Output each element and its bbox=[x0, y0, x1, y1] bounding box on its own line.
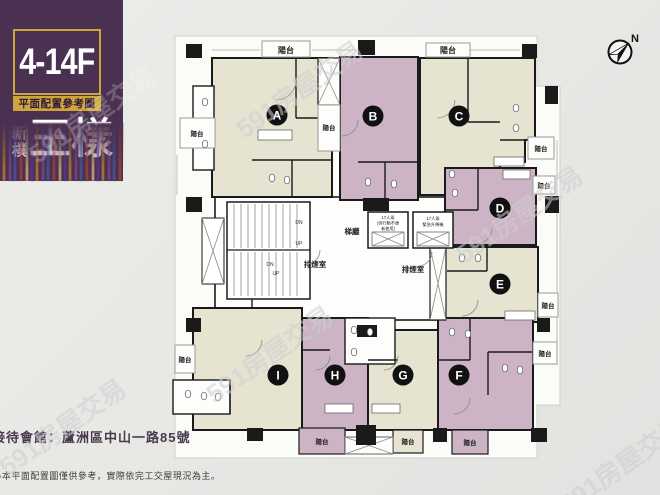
unit-marker-C: C bbox=[449, 106, 470, 127]
flyer-root: 陽台 陽台 陽台 陽台 陽台 陽台 陽台 陽台 陽台 陽台 陽台 陽台 bbox=[0, 0, 660, 495]
balcony-label: 陽台 bbox=[179, 355, 193, 364]
elevator1-note2: 者使用) bbox=[381, 225, 396, 232]
floor-range-text: 4-14F bbox=[19, 41, 94, 83]
stair-up-label: UP bbox=[296, 241, 304, 247]
elevator2-capacity: 17人乘 bbox=[426, 215, 440, 222]
lift-hall-label: 梯廳 bbox=[345, 226, 360, 236]
unit-marker-F: F bbox=[449, 365, 470, 386]
disclaimer-note: ●本平面配置圖僅供參考，實際依完工交屋現況為主。 bbox=[0, 469, 220, 482]
balcony-label: 陽台 bbox=[464, 438, 478, 447]
balcony-label: 陽台 bbox=[323, 123, 337, 132]
svg-text:A: A bbox=[273, 109, 282, 123]
north-label: N bbox=[631, 33, 639, 45]
title-panel: 4-14F 平面配置參考圖 新 樸 王樣 bbox=[0, 0, 123, 181]
light-streaks-decoration bbox=[0, 123, 123, 181]
balcony-label: 陽台 bbox=[316, 437, 330, 446]
svg-text:I: I bbox=[276, 369, 279, 383]
svg-text:G: G bbox=[398, 369, 407, 383]
unit-marker-B: B bbox=[363, 106, 384, 127]
balcony-label: 陽台 bbox=[539, 349, 553, 358]
balcony-label: 陽台 bbox=[191, 129, 205, 138]
unit-marker-E: E bbox=[490, 274, 511, 295]
plan-subtitle: 平面配置參考圖 bbox=[13, 96, 101, 111]
elevator-2: 17人乘 緊急升降機 bbox=[413, 212, 453, 248]
svg-text:C: C bbox=[455, 110, 464, 124]
unit-marker-H: H bbox=[325, 365, 346, 386]
balcony-label: 陽台 bbox=[542, 301, 556, 310]
svg-text:B: B bbox=[369, 110, 378, 124]
stairwell: DN UP DN UP bbox=[227, 202, 310, 299]
compass: N bbox=[609, 33, 640, 64]
elevator2-note: 緊急升降機 bbox=[423, 221, 445, 228]
svg-text:F: F bbox=[455, 369, 462, 383]
floor-range-box: 4-14F bbox=[13, 29, 101, 95]
balcony-label: 陽台 bbox=[535, 144, 549, 153]
stair-dn-label: DN bbox=[295, 220, 303, 226]
unit-marker-I: I bbox=[268, 365, 289, 386]
svg-text:D: D bbox=[496, 202, 505, 216]
vent-shaft-top bbox=[318, 58, 340, 105]
balcony-label: 陽台 bbox=[402, 437, 416, 446]
stair-dn-label: DN bbox=[266, 262, 274, 268]
balcony-label: 陽台 bbox=[278, 45, 294, 55]
svg-text:H: H bbox=[331, 369, 340, 383]
balcony-label: 陽台 bbox=[538, 181, 552, 190]
balcony-label: 陽台 bbox=[440, 45, 456, 55]
unit-marker-D: D bbox=[490, 198, 511, 219]
unit-marker-A: A bbox=[267, 105, 288, 126]
elevator-1: 17人乘 (供行動不便 者使用) bbox=[368, 212, 408, 248]
stair-up-label: UP bbox=[273, 271, 281, 277]
svg-text:E: E bbox=[496, 278, 504, 292]
reception-address: 接待會館：蘆洲區中山一路85號 bbox=[0, 427, 190, 446]
unit-B-area bbox=[340, 57, 418, 200]
duct-shaft-left bbox=[202, 218, 224, 284]
unit-marker-G: G bbox=[393, 365, 414, 386]
